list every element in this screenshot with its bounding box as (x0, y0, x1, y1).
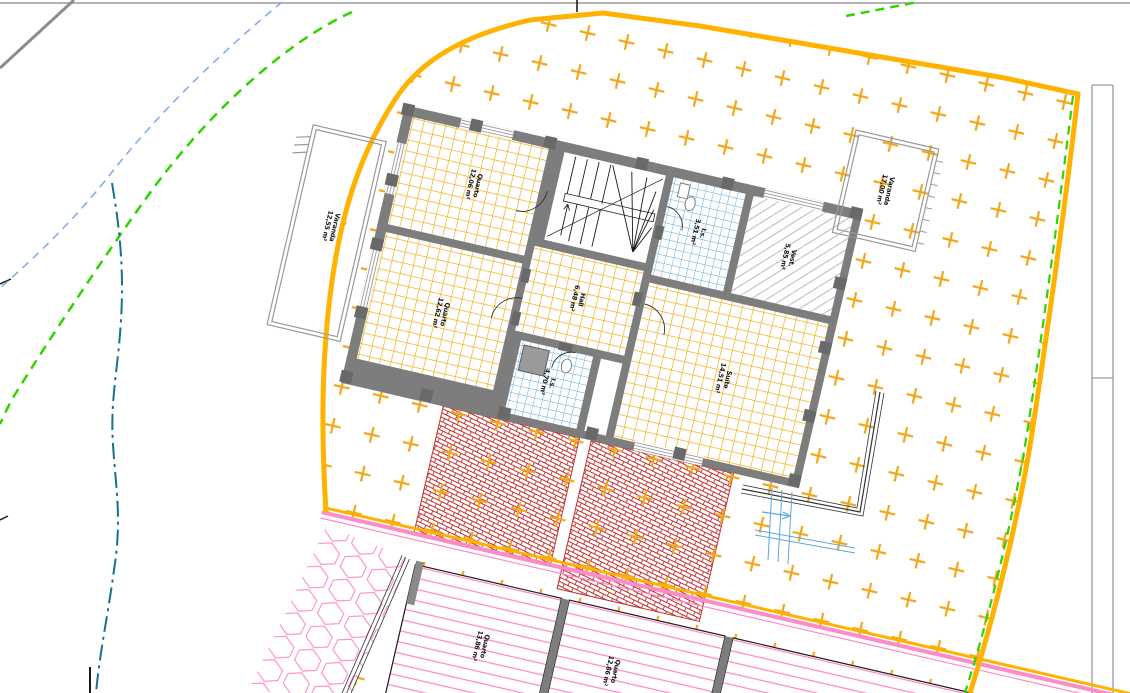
boundary-green-dashed-topright (846, 2, 918, 16)
road-kerb-topleft (0, 0, 74, 68)
boundary-green-dashed-left (0, 12, 352, 424)
services-blue-dashed-curve (0, 2, 282, 288)
contour-teal-dashdot (96, 183, 122, 693)
left-edge-tick-2 (0, 516, 8, 520)
garden-steps (292, 133, 310, 156)
site-plan-canvas: Quarto 13,86 m² Quarto 12,86 m² (0, 0, 1130, 693)
